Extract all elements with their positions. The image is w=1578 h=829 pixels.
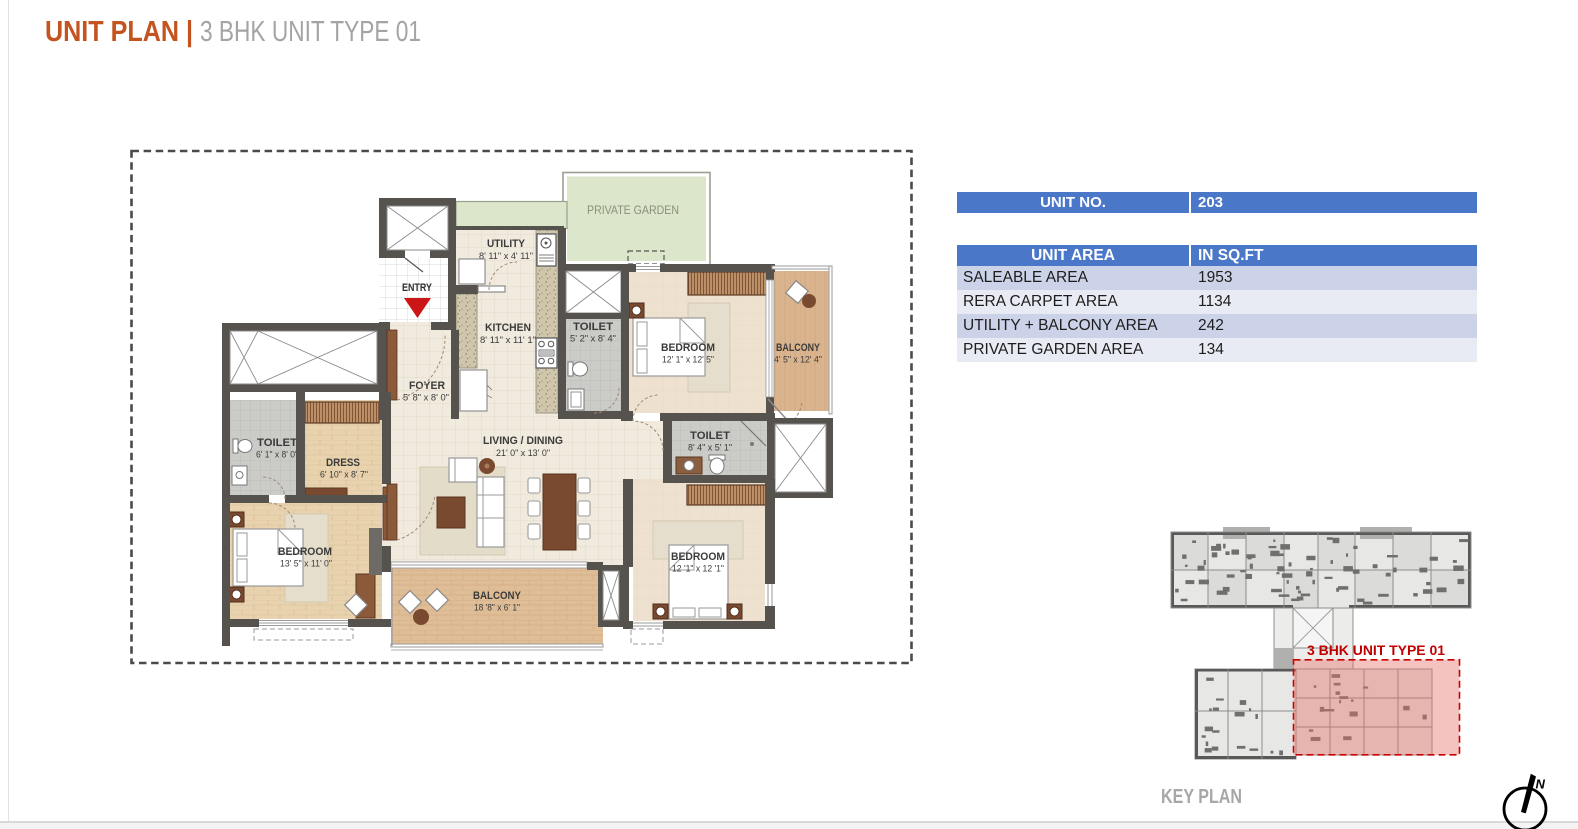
- svg-text:FOYER: FOYER: [409, 380, 445, 392]
- svg-text:21' 0" x 13' 0": 21' 0" x 13' 0": [496, 448, 550, 459]
- svg-text:BEDROOM: BEDROOM: [661, 342, 715, 354]
- svg-text:18 '8" x 6' 1": 18 '8" x 6' 1": [474, 603, 520, 614]
- svg-text:13' 5" x 11' 0": 13' 5" x 11' 0": [280, 559, 332, 570]
- svg-text:TOILET: TOILET: [690, 430, 730, 442]
- svg-text:UTILITY: UTILITY: [487, 238, 526, 250]
- svg-text:TOILET: TOILET: [573, 321, 613, 333]
- svg-text:BEDROOM: BEDROOM: [671, 551, 725, 563]
- svg-text:TOILET: TOILET: [257, 437, 297, 449]
- svg-text:KEY PLAN: KEY PLAN: [1161, 786, 1242, 808]
- svg-text:12' 1" x 12' 5": 12' 1" x 12' 5": [662, 355, 714, 366]
- svg-text:LIVING / DINING: LIVING / DINING: [483, 435, 563, 447]
- svg-text:BALCONY: BALCONY: [473, 590, 522, 602]
- svg-text:12 '1" x 12 '1": 12 '1" x 12 '1": [672, 564, 724, 575]
- svg-text:ENTRY: ENTRY: [402, 282, 433, 294]
- svg-text:3 BHK UNIT TYPE 01: 3 BHK UNIT TYPE 01: [1307, 643, 1446, 658]
- svg-text:KITCHEN: KITCHEN: [485, 322, 531, 334]
- svg-text:PRIVATE GARDEN: PRIVATE GARDEN: [587, 205, 679, 217]
- svg-text:BALCONY: BALCONY: [776, 342, 821, 354]
- svg-text:8' 11" x 11' 1": 8' 11" x 11' 1": [480, 335, 536, 346]
- svg-text:8' 11" x 4' 11": 8' 11" x 4' 11": [479, 251, 533, 262]
- svg-text:5' 8" x 8' 0": 5' 8" x 8' 0": [403, 393, 449, 404]
- svg-text:6' 10" x 8' 7": 6' 10" x 8' 7": [320, 470, 368, 481]
- svg-text:8' 4" x 5' 1": 8' 4" x 5' 1": [688, 443, 732, 454]
- svg-text:DRESS: DRESS: [326, 457, 360, 469]
- svg-text:4' 5" x 12' 4": 4' 5" x 12' 4": [774, 355, 822, 366]
- svg-text:BEDROOM: BEDROOM: [278, 546, 332, 558]
- svg-text:6' 1" x 8' 0": 6' 1" x 8' 0": [256, 450, 298, 461]
- svg-text:N: N: [1536, 777, 1546, 792]
- svg-text:5' 2" x 8' 4": 5' 2" x 8' 4": [570, 334, 616, 345]
